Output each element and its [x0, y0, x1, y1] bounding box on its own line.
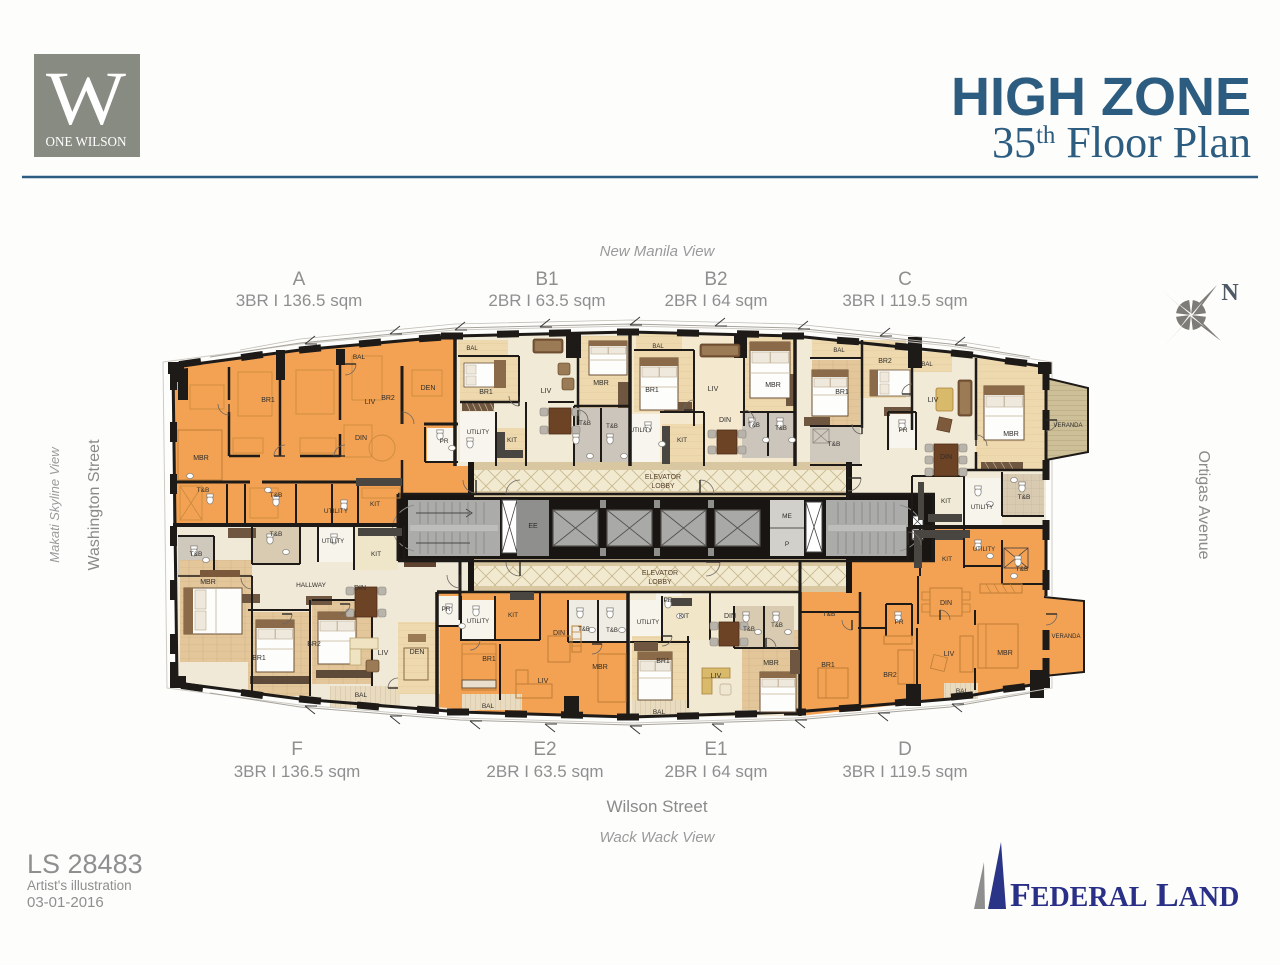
svg-text:T&B: T&B — [1018, 494, 1031, 501]
svg-text:03-01-2016: 03-01-2016 — [27, 894, 104, 911]
svg-text:New Manila View: New Manila View — [600, 243, 716, 260]
svg-text:BR1: BR1 — [482, 656, 496, 663]
svg-text:MBR: MBR — [765, 382, 781, 389]
svg-text:BR2: BR2 — [307, 641, 321, 648]
svg-text:LIV: LIV — [541, 388, 552, 395]
svg-text:UTILITY: UTILITY — [971, 505, 993, 511]
svg-text:UTILITY: UTILITY — [630, 428, 652, 434]
svg-text:35th Floor Plan: 35th Floor Plan — [992, 118, 1251, 167]
svg-text:MBR: MBR — [200, 579, 216, 586]
svg-text:DIN: DIN — [724, 613, 736, 620]
svg-text:LIV: LIV — [378, 650, 389, 657]
svg-text:T&B: T&B — [190, 551, 203, 558]
svg-text:BAL: BAL — [482, 703, 495, 710]
svg-text:BR2: BR2 — [878, 358, 892, 365]
svg-text:LOBBY: LOBBY — [648, 579, 672, 586]
svg-text:BAL: BAL — [652, 344, 664, 350]
svg-text:LOBBY: LOBBY — [651, 483, 675, 490]
svg-text:BR1: BR1 — [252, 655, 266, 662]
svg-text:KIT: KIT — [507, 437, 517, 444]
svg-text:T&B: T&B — [828, 441, 841, 448]
svg-text:C: C — [898, 269, 912, 290]
svg-text:PR: PR — [894, 619, 903, 626]
svg-text:T&B: T&B — [578, 627, 590, 633]
svg-text:KIT: KIT — [942, 556, 952, 563]
svg-text:BAL: BAL — [353, 354, 366, 361]
svg-text:DIN: DIN — [355, 435, 367, 442]
svg-text:BAL: BAL — [355, 692, 368, 699]
svg-text:MBR: MBR — [592, 664, 608, 671]
svg-text:3BR I 119.5 sqm: 3BR I 119.5 sqm — [842, 762, 967, 781]
svg-text:KIT: KIT — [679, 613, 689, 620]
svg-text:BAL: BAL — [466, 346, 478, 352]
svg-text:Makati Skyline View: Makati Skyline View — [47, 446, 62, 563]
svg-text:BAL: BAL — [921, 362, 933, 368]
svg-text:2BR I 64 sqm: 2BR I 64 sqm — [665, 291, 768, 310]
svg-text:T&B: T&B — [743, 627, 755, 633]
svg-text:LIV: LIV — [928, 397, 939, 404]
svg-text:LS 28483: LS 28483 — [27, 849, 143, 879]
svg-text:2BR I 63.5 sqm: 2BR I 63.5 sqm — [488, 291, 605, 310]
svg-text:BAL: BAL — [653, 709, 666, 716]
svg-text:E2: E2 — [533, 739, 556, 760]
svg-text:T&B: T&B — [270, 492, 283, 499]
svg-text:T&B: T&B — [823, 611, 836, 618]
svg-text:Artist's illustration: Artist's illustration — [27, 878, 132, 893]
svg-text:E1: E1 — [704, 739, 727, 760]
svg-text:PR: PR — [439, 438, 448, 445]
svg-text:BAL: BAL — [956, 688, 969, 695]
svg-text:DIN: DIN — [553, 630, 565, 637]
svg-text:B1: B1 — [535, 269, 558, 290]
svg-text:T&B: T&B — [1016, 566, 1029, 573]
svg-text:DEN: DEN — [421, 385, 436, 392]
svg-text:UTILITY: UTILITY — [324, 508, 349, 515]
svg-text:ELEVATOR: ELEVATOR — [645, 474, 681, 481]
svg-text:DIN: DIN — [719, 417, 731, 424]
svg-text:BR1: BR1 — [261, 397, 275, 404]
svg-text:LIV: LIV — [708, 386, 719, 393]
svg-text:UTILITY: UTILITY — [322, 539, 344, 545]
svg-text:2BR I 63.5 sqm: 2BR I 63.5 sqm — [486, 762, 603, 781]
svg-text:ME: ME — [782, 513, 792, 520]
svg-text:LIV: LIV — [711, 673, 722, 680]
svg-text:BR2: BR2 — [883, 672, 897, 679]
svg-text:T&B: T&B — [579, 421, 591, 427]
svg-text:DIN: DIN — [940, 454, 952, 461]
svg-text:BR1: BR1 — [656, 658, 670, 665]
svg-text:FEDERAL LAND: FEDERAL LAND — [1010, 877, 1239, 914]
svg-text:Washington Street: Washington Street — [86, 439, 103, 571]
svg-text:MBR: MBR — [997, 650, 1013, 657]
svg-text:2BR I 64 sqm: 2BR I 64 sqm — [665, 762, 768, 781]
svg-text:PR: PR — [441, 606, 450, 613]
svg-text:BR2: BR2 — [381, 395, 395, 402]
svg-text:3BR I 136.5 sqm: 3BR I 136.5 sqm — [236, 291, 363, 310]
svg-text:ONE WILSON: ONE WILSON — [46, 135, 127, 150]
svg-text:KIT: KIT — [370, 501, 380, 508]
svg-text:BAL: BAL — [833, 348, 845, 354]
svg-text:Wilson Street: Wilson Street — [606, 797, 707, 816]
svg-text:KIT: KIT — [371, 551, 381, 558]
svg-text:MBR: MBR — [193, 455, 209, 462]
svg-text:UTILITY: UTILITY — [973, 547, 995, 553]
svg-text:F: F — [291, 739, 303, 760]
svg-text:D: D — [898, 739, 912, 760]
svg-text:T&B: T&B — [771, 623, 783, 629]
svg-text:KIT: KIT — [677, 437, 687, 444]
svg-text:HALLWAY: HALLWAY — [296, 582, 327, 589]
svg-text:T&B: T&B — [748, 423, 760, 429]
svg-text:3BR I 119.5 sqm: 3BR I 119.5 sqm — [842, 291, 967, 310]
svg-text:T&B: T&B — [606, 628, 618, 634]
svg-text:BR1: BR1 — [835, 389, 849, 396]
svg-text:VERANDA: VERANDA — [1053, 423, 1082, 429]
svg-text:BR1: BR1 — [645, 387, 659, 394]
svg-text:LIV: LIV — [944, 651, 955, 658]
svg-text:DIN: DIN — [354, 585, 366, 592]
svg-text:W: W — [46, 57, 126, 141]
svg-text:Ortigas Avenue: Ortigas Avenue — [1195, 450, 1212, 559]
svg-text:MBR: MBR — [1003, 431, 1019, 438]
svg-text:DEN: DEN — [410, 649, 425, 656]
svg-text:ELEVATOR: ELEVATOR — [642, 570, 678, 577]
svg-text:B2: B2 — [704, 269, 727, 290]
svg-text:N: N — [1221, 280, 1239, 306]
svg-text:3BR I 136.5 sqm: 3BR I 136.5 sqm — [234, 762, 361, 781]
svg-text:P: P — [785, 541, 789, 548]
svg-text:VERANDA: VERANDA — [1051, 634, 1080, 640]
svg-text:BR1: BR1 — [821, 662, 835, 669]
svg-text:PR: PR — [898, 427, 907, 434]
svg-text:PR: PR — [663, 597, 672, 604]
svg-text:LIV: LIV — [538, 678, 549, 685]
svg-text:Wack Wack View: Wack Wack View — [599, 829, 715, 846]
svg-text:UTILITY: UTILITY — [467, 619, 489, 625]
svg-text:KIT: KIT — [508, 612, 518, 619]
svg-text:MBR: MBR — [593, 380, 609, 387]
svg-text:T&B: T&B — [270, 531, 283, 538]
svg-text:KIT: KIT — [941, 498, 951, 505]
svg-text:T&B: T&B — [775, 426, 787, 432]
svg-text:DIN: DIN — [940, 600, 952, 607]
svg-text:BR1: BR1 — [479, 389, 493, 396]
svg-text:LIV: LIV — [365, 399, 376, 406]
svg-text:UTILITY: UTILITY — [637, 620, 659, 626]
svg-text:T&B: T&B — [606, 424, 618, 430]
svg-text:A: A — [293, 269, 306, 290]
svg-text:T&B: T&B — [197, 487, 210, 494]
svg-text:EE: EE — [528, 523, 538, 530]
svg-text:MBR: MBR — [763, 660, 779, 667]
svg-text:UTILITY: UTILITY — [467, 430, 489, 436]
